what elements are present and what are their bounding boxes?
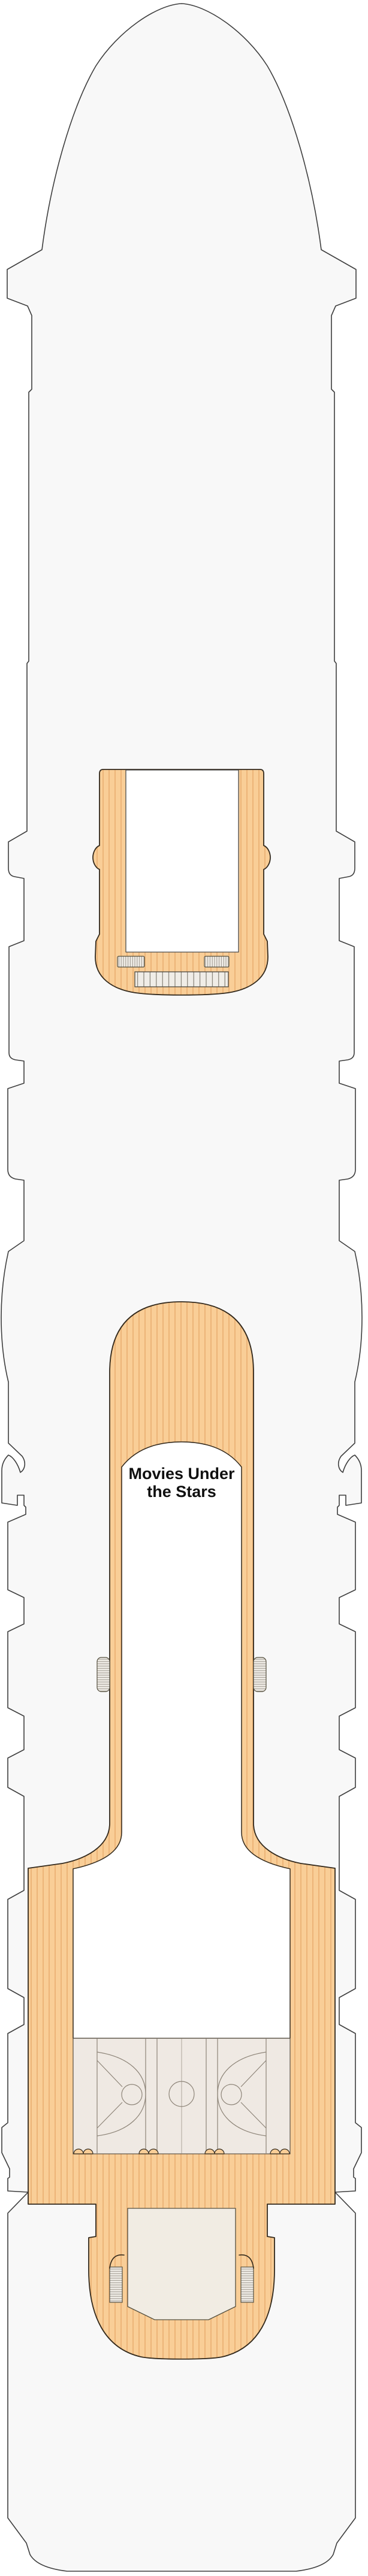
- stern-terrace-icon: [110, 2208, 254, 2320]
- ladder-icon-tower-left: [97, 1657, 110, 1692]
- muts-label-line1: Movies Under: [110, 1465, 254, 1483]
- ladder-icon-stern-right: [241, 2267, 254, 2302]
- ladder-icon-tower-right: [254, 1657, 266, 1692]
- forward-skylight-opening: [126, 770, 239, 952]
- stern-terrace-floor: [128, 2208, 236, 2320]
- ladder-icon-forward-left: [117, 956, 144, 967]
- deck-plan-page: Movies Under the Stars: [0, 0, 368, 2576]
- muts-label: Movies Under the Stars: [110, 1465, 254, 1501]
- ladder-icon-forward-right: [204, 956, 229, 967]
- forward-deck-structure: [93, 769, 270, 995]
- sports-court: [73, 2038, 290, 2154]
- muts-label-line2: the Stars: [110, 1483, 254, 1501]
- deck-plan-canvas: [0, 0, 368, 2576]
- vent-grill-icon-forward: [135, 972, 228, 987]
- ladder-icon-stern-left: [110, 2267, 122, 2302]
